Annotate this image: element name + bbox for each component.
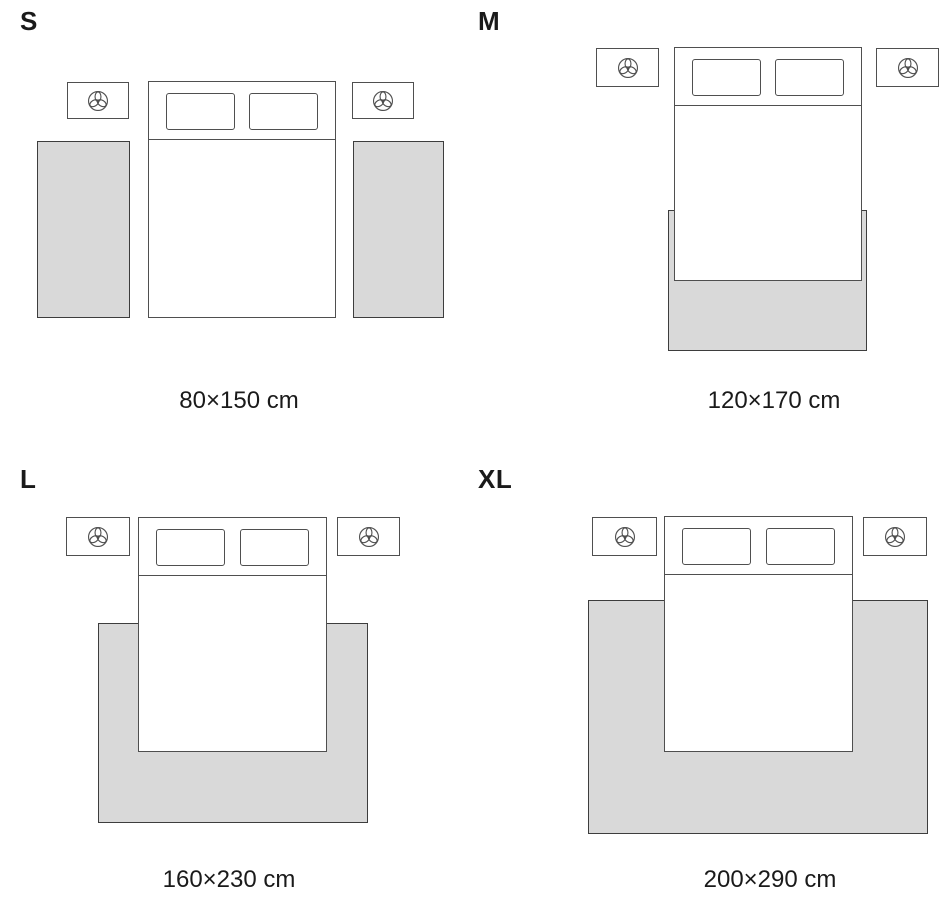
bed-headboard [675,48,861,106]
bed-shape [138,517,327,752]
plant-icon [611,523,639,551]
nightstand-left [66,517,130,556]
pillow-shape [240,529,309,566]
nightstand-right [863,517,927,556]
rug-size-guide-diagram: S 80×150 cm [0,0,950,900]
size-label-l: L [20,465,36,494]
plant-icon [84,87,112,115]
plant-icon [369,87,397,115]
bed-shape [664,516,853,752]
bed-shape [148,81,336,318]
nightstand-left [592,517,657,556]
pillow-shape [249,93,318,130]
size-label-xl: XL [478,465,512,494]
bed-shape [674,47,862,281]
nightstand-right [352,82,414,119]
pillow-shape [166,93,235,130]
size-label-m: M [478,7,500,36]
bed-headboard [139,518,326,576]
rug-runner-left [37,141,130,318]
size-dimensions-s: 80×150 cm [179,389,298,413]
bed-headboard [149,82,335,140]
size-dimensions-m: 120×170 cm [708,389,841,413]
pillow-shape [156,529,225,566]
pillow-shape [692,59,761,96]
size-label-s: S [20,7,38,36]
pillow-shape [775,59,844,96]
plant-icon [881,523,909,551]
nightstand-left [596,48,659,87]
pillow-shape [766,528,835,565]
size-dimensions-l: 160×230 cm [163,868,296,892]
size-dimensions-xl: 200×290 cm [704,868,837,892]
bed-headboard [665,517,852,575]
plant-icon [84,523,112,551]
plant-icon [355,523,383,551]
nightstand-left [67,82,129,119]
nightstand-right [337,517,400,556]
rug-runner-right [353,141,444,318]
nightstand-right [876,48,939,87]
plant-icon [894,54,922,82]
pillow-shape [682,528,751,565]
plant-icon [614,54,642,82]
